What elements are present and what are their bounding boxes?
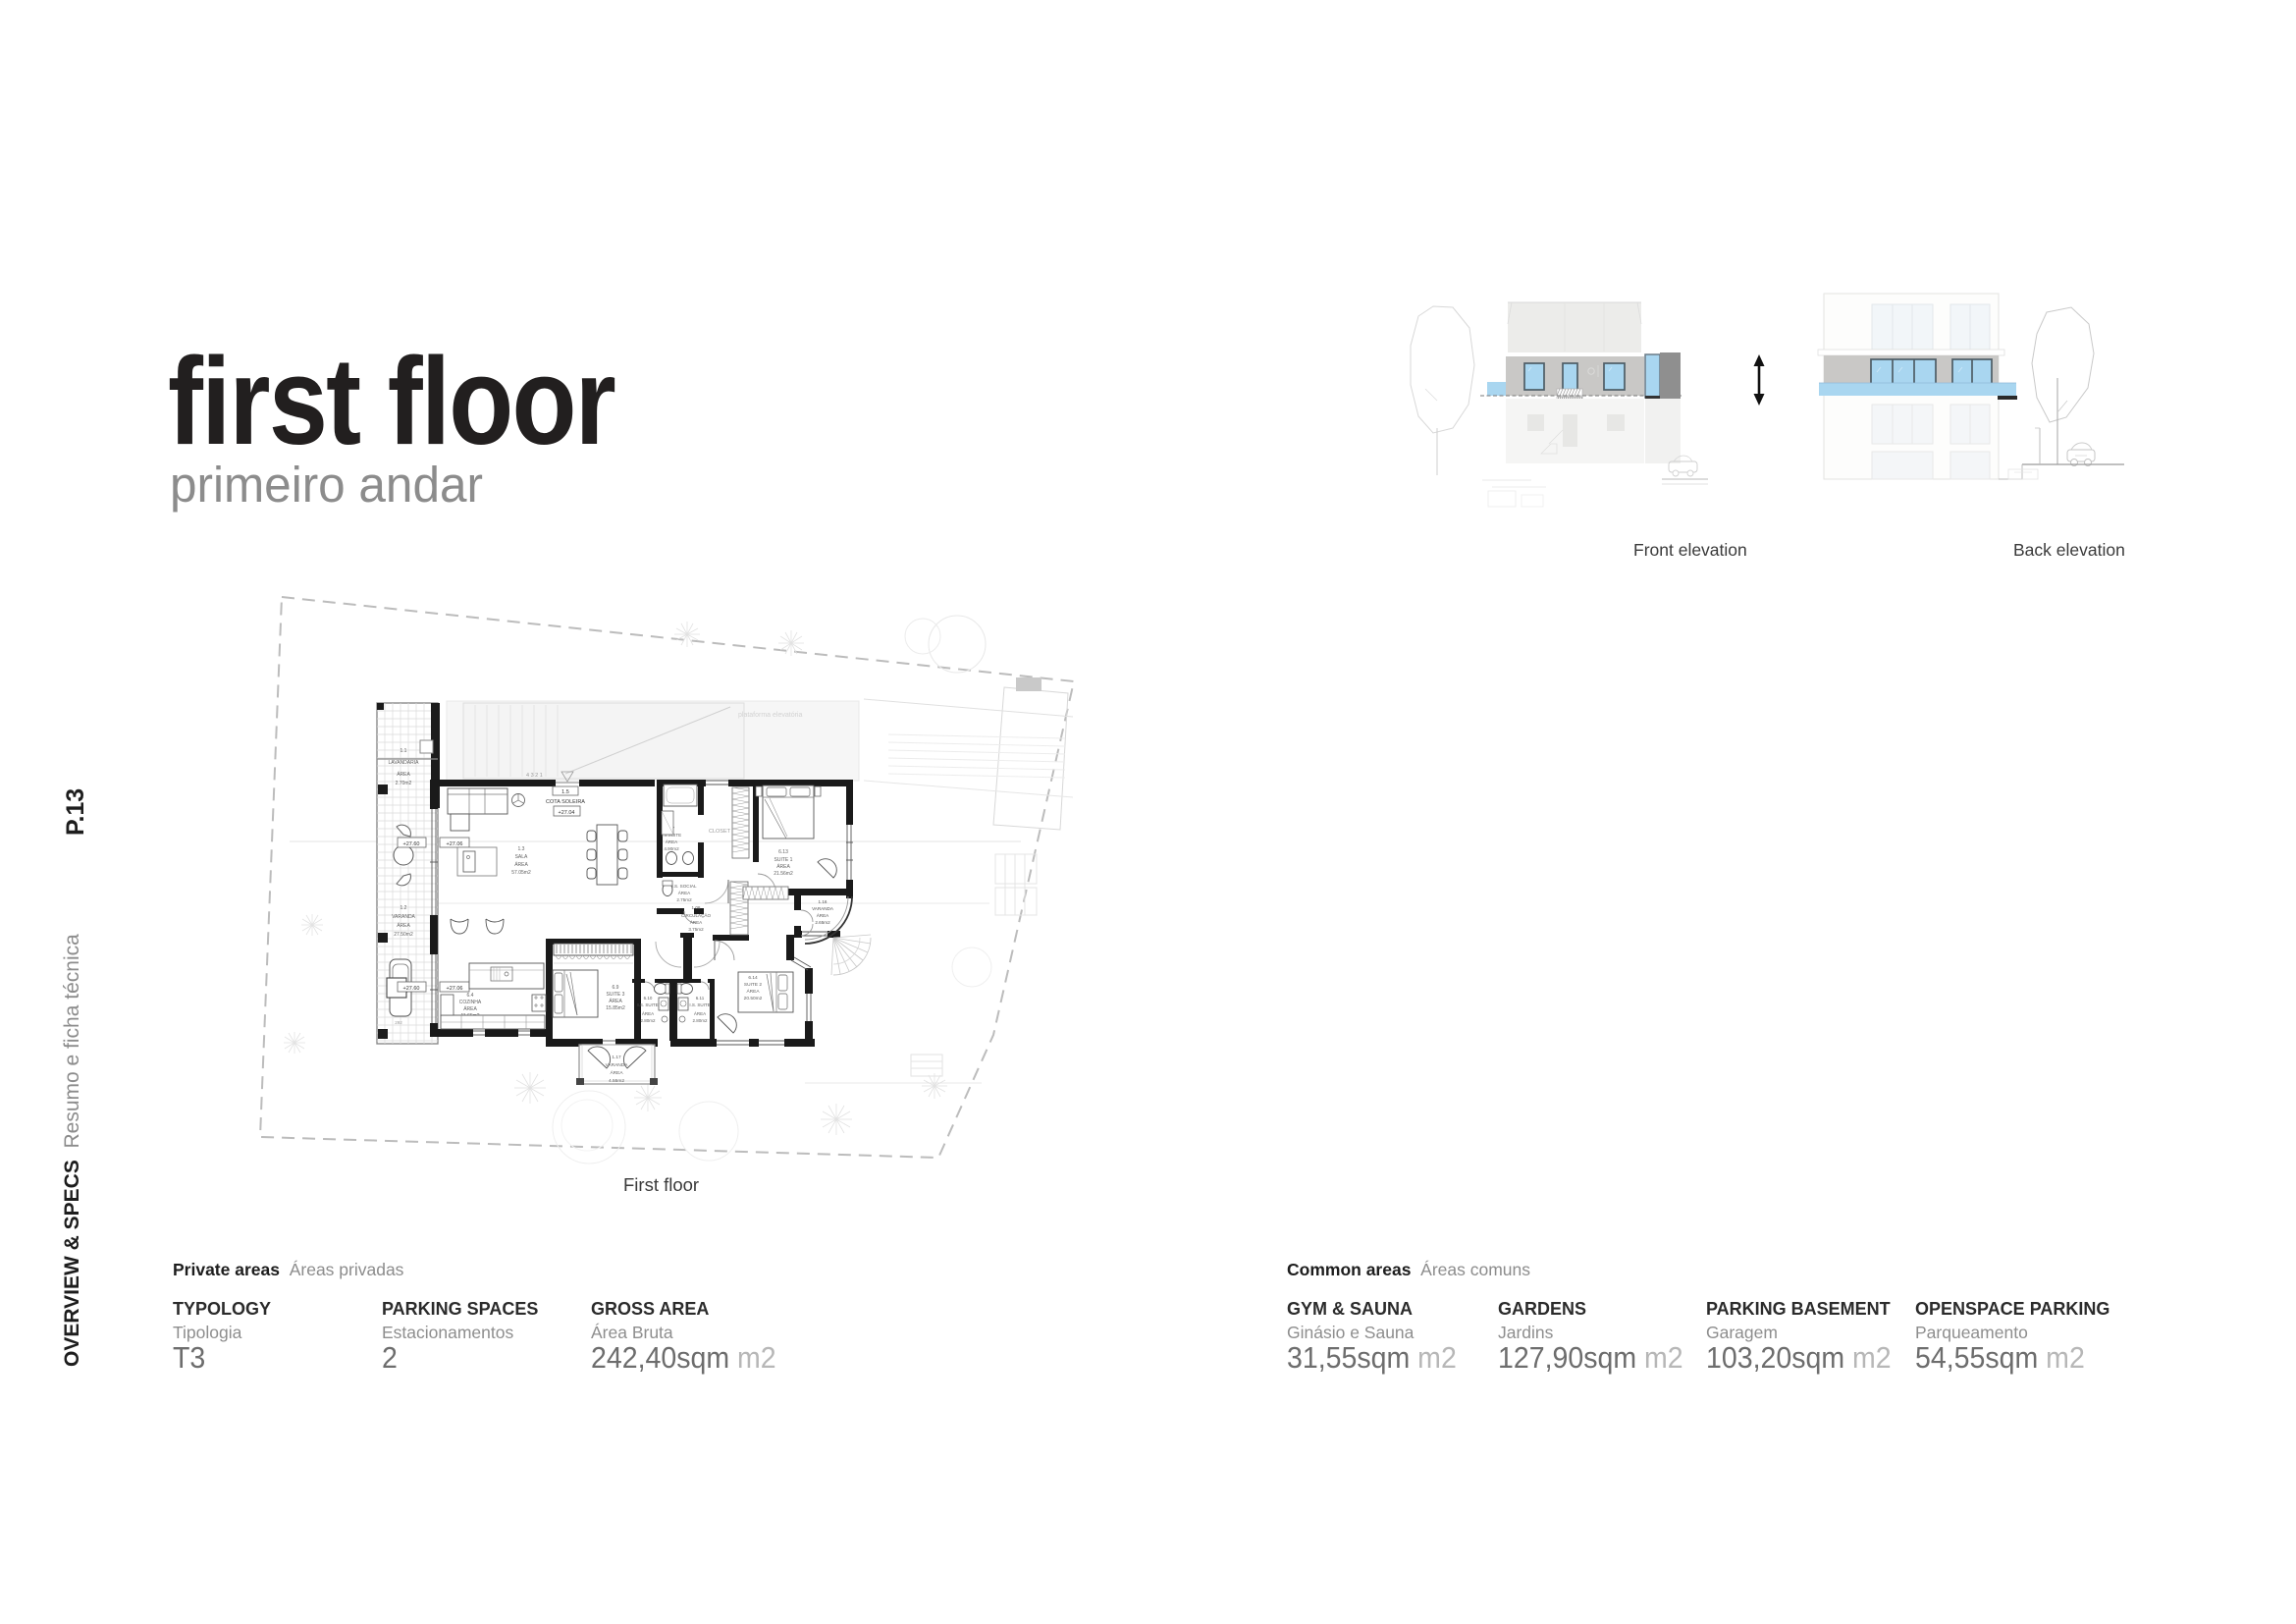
svg-text:6.11: 6.11	[696, 996, 705, 1001]
svg-text:+27.60: +27.60	[403, 841, 420, 847]
svg-text:4.90m2: 4.90m2	[664, 846, 679, 851]
svg-text:ÁREA: ÁREA	[746, 988, 760, 995]
svg-text:SUITE 2: SUITE 2	[744, 982, 762, 988]
svg-text:6.14: 6.14	[748, 975, 758, 981]
svg-text:plataforma elevatória: plataforma elevatória	[738, 712, 802, 719]
svg-text:ÁREA: ÁREA	[397, 771, 410, 778]
svg-text:3.75m2: 3.75m2	[688, 927, 704, 932]
svg-text:I.S. SUITE: I.S. SUITE	[689, 1002, 710, 1007]
svg-text:CLOSET: CLOSET	[709, 829, 731, 835]
svg-text:ÁREA: ÁREA	[609, 998, 622, 1004]
svg-text:1.08: 1.08	[692, 905, 701, 910]
svg-text:20.50m2: 20.50m2	[744, 996, 763, 1001]
svg-text:ÁREA: ÁREA	[610, 1069, 623, 1076]
svg-text:ÁREA: ÁREA	[817, 912, 829, 918]
svg-text:1.5: 1.5	[561, 789, 569, 795]
svg-text:COTA SOLEIRA: COTA SOLEIRA	[546, 799, 585, 805]
svg-text:6.4: 6.4	[467, 993, 474, 999]
svg-text:SUITE 3: SUITE 3	[607, 992, 625, 998]
svg-text:ÁREA: ÁREA	[690, 919, 703, 925]
svg-text:I.S. SUITE: I.S. SUITE	[637, 1002, 658, 1007]
svg-text:6.10: 6.10	[644, 996, 653, 1001]
svg-text:2.75m2: 2.75m2	[676, 897, 692, 902]
svg-text:2.65m2: 2.65m2	[815, 920, 830, 925]
svg-text:21.56m2: 21.56m2	[774, 871, 793, 877]
svg-text:VARANDA: VARANDA	[392, 914, 415, 920]
svg-text:ÁREA: ÁREA	[678, 890, 691, 895]
svg-text:VARANDA: VARANDA	[606, 1062, 629, 1068]
svg-text:6.9: 6.9	[613, 985, 619, 991]
svg-text:27.50m2: 27.50m2	[394, 932, 413, 938]
svg-text:ÁREA: ÁREA	[463, 1005, 477, 1012]
svg-text:+27.06: +27.06	[447, 986, 463, 992]
svg-text:ÁREA: ÁREA	[694, 1010, 706, 1016]
svg-text:I.S. SOCIAL: I.S. SOCIAL	[671, 884, 696, 889]
svg-text:VARANDA: VARANDA	[812, 906, 834, 911]
svg-text:4.55m2: 4.55m2	[609, 1078, 624, 1084]
svg-text:292: 292	[395, 1020, 402, 1025]
svg-text:ÁREA: ÁREA	[514, 861, 528, 868]
svg-text:COZINHA: COZINHA	[459, 1000, 482, 1005]
svg-text:2.80m2: 2.80m2	[640, 1018, 656, 1023]
svg-text:1.17: 1.17	[612, 1055, 621, 1060]
svg-text:SUITE 1: SUITE 1	[774, 857, 793, 863]
svg-text:ÁREA: ÁREA	[666, 839, 678, 844]
svg-text:+27.60: +27.60	[403, 986, 420, 992]
svg-text:CIRCULAÇÃO: CIRCULAÇÃO	[681, 912, 712, 918]
svg-text:6.13: 6.13	[778, 849, 788, 855]
svg-text:SALA: SALA	[515, 854, 528, 860]
svg-text:ÁREA: ÁREA	[642, 1010, 654, 1016]
svg-text:4 3 2 1: 4 3 2 1	[526, 773, 543, 779]
svg-text:2.70m2: 2.70m2	[396, 781, 412, 786]
svg-text:ÁREA: ÁREA	[397, 922, 410, 929]
svg-text:+27.04: +27.04	[559, 810, 575, 816]
svg-text:ÁREA: ÁREA	[776, 863, 790, 870]
svg-text:1.3: 1.3	[518, 846, 525, 852]
svg-text:1.1: 1.1	[400, 748, 407, 754]
svg-text:1.2: 1.2	[400, 905, 407, 911]
svg-text:+27.06: +27.06	[447, 841, 463, 847]
svg-text:57.05m2: 57.05m2	[511, 870, 531, 876]
svg-text:1.16: 1.16	[819, 899, 828, 904]
svg-text:LAVANDARIA: LAVANDARIA	[389, 760, 420, 766]
svg-text:2.80m2: 2.80m2	[692, 1018, 708, 1023]
svg-text:15.85m2: 15.85m2	[606, 1005, 625, 1011]
